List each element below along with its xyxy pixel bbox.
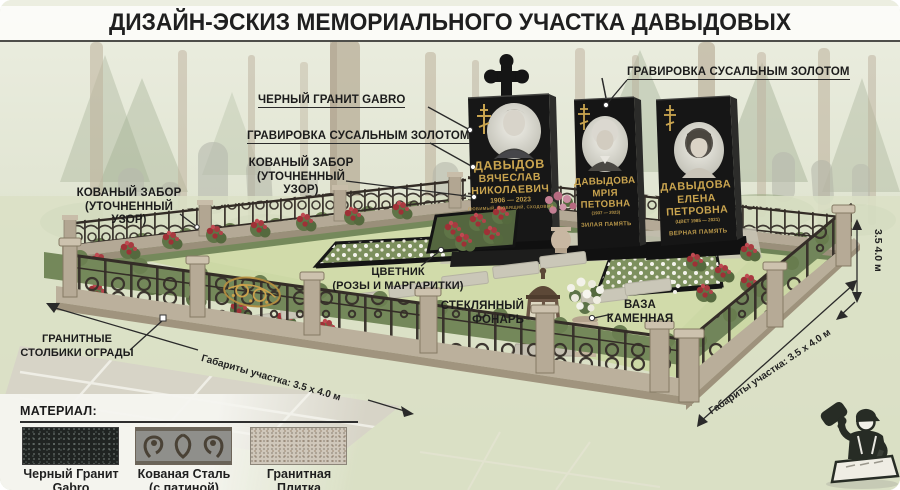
callout-glass-lantern: СТЕКЛЯННЫЙ ФОНАРЬ — [432, 300, 524, 327]
page-title: ДИЗАЙН-ЭСКИЗ МЕМОРИАЛЬНОГО УЧАСТКА ДАВЫД… — [109, 9, 791, 37]
material-swatch-granite-tile — [250, 427, 347, 465]
monument-2-surname: ДАВЫДОВА — [573, 175, 636, 189]
material-swatch-black-granite — [22, 427, 119, 465]
monument-1-inscription: ДАВЫДОВ ВЯЧЕСЛАВ НИКОЛАЕВИЧ 1906 — 2023 … — [466, 157, 554, 213]
material-label-black-granite: Черный Гранит Gabro — [16, 468, 126, 490]
dimension-height: 3.5 4.0 м — [872, 229, 884, 272]
callout-stone-vase: ВАЗА КАМЕННАЯ — [600, 299, 680, 326]
callout-black-granite: ЧЕРНЫЙ ГРАНИТ GABRO — [258, 94, 405, 108]
callout-gilding-left: ГРАВИРОВКА СУСАЛЬНЫМ ЗОЛОТОМ — [247, 130, 470, 144]
forged-steel-pattern — [136, 428, 231, 464]
monument-3-inscription: ДАВЫДОВА ЕЛЕНА ПЕТРОВНА (ЦВЕТ 1985 — 202… — [657, 178, 738, 239]
callout-forged-fence-lower: КОВАНЫЙ ЗАБОР (УТОЧНЕННЫЙ УЗОР) — [66, 187, 192, 228]
monument-2-inscription: ДАВЫДОВА МРІЯ ПЕТОВНА (1937 — 2023) ЗИЛА… — [573, 175, 638, 230]
material-label-granite-tile: Гранитная Плитка — [244, 468, 354, 490]
material-swatch-forged-steel — [135, 427, 232, 465]
title-bar: ДИЗАЙН-ЭСКИЗ МЕМОРИАЛЬНОГО УЧАСТКА ДАВЫД… — [0, 6, 900, 42]
callout-gilding-right: ГРАВИРОВКА СУСАЛЬНЫМ ЗОЛОТОМ — [627, 66, 850, 80]
memorial-design-sheet: ДИЗАЙН-ЭСКИЗ МЕМОРИАЛЬНОГО УЧАСТКА ДАВЫД… — [0, 0, 900, 490]
callout-granite-pillars: ГРАНИТНЫЕ СТОЛБИКИ ОГРАДЫ — [16, 333, 138, 360]
materials-divider — [20, 421, 358, 423]
material-label-forged-steel: Кованая Сталь (с патиной) — [129, 468, 239, 490]
callout-flowerbed: ЦВЕТНИК (РОЗЫ И МАРГАРИТКИ) — [318, 266, 478, 293]
callout-forged-fence-upper: КОВАНЫЙ ЗАБОР (УТОЧНЕННЫЙ УЗОР) — [238, 157, 364, 198]
materials-header: МАТЕРИАЛ: — [20, 404, 97, 418]
monument-2-dates: (1937 — 2023) — [574, 209, 637, 217]
